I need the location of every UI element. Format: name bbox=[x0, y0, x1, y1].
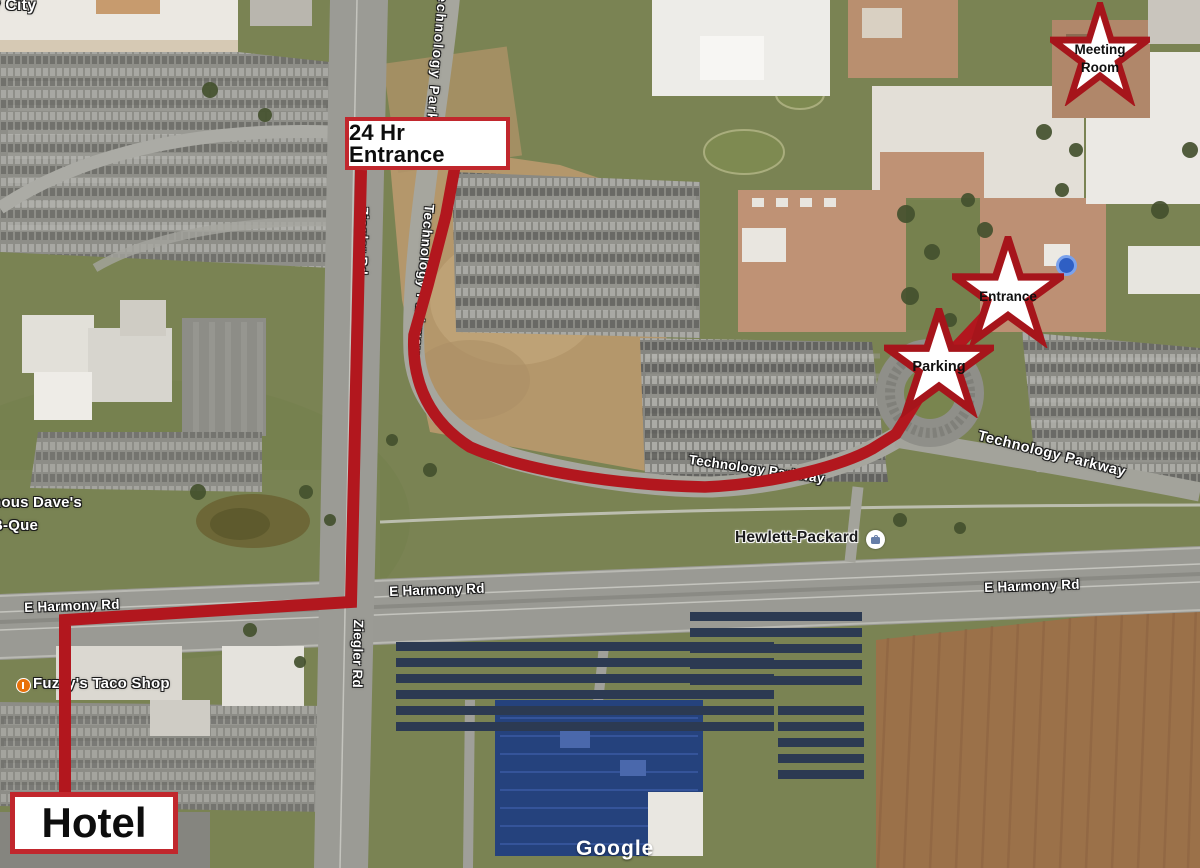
poi-label-famous-daves-line1: nous Dave's bbox=[0, 494, 82, 511]
callout-hotel-label: Hotel bbox=[42, 802, 147, 844]
star-label: Meeting Room bbox=[1074, 32, 1125, 76]
star-marker-parking: Parking bbox=[884, 308, 994, 418]
poi-label-famous-daves-line2: B-Que bbox=[0, 517, 38, 534]
callout-hotel: Hotel bbox=[10, 792, 178, 854]
callout-24hr-entrance: 24 Hr Entrance bbox=[345, 117, 510, 170]
star-label: Entrance bbox=[979, 279, 1037, 306]
poi-label-fuzzys-taco-shop: Fuzzy's Taco Shop bbox=[33, 675, 170, 692]
road-label-ziegler-lower: Ziegler Rd bbox=[350, 620, 366, 688]
business-icon bbox=[866, 530, 885, 549]
star-label-line1: Meeting bbox=[1074, 42, 1125, 57]
google-watermark: Google bbox=[576, 837, 654, 861]
star-label-line2: Room bbox=[1081, 60, 1119, 75]
satellite-basemap bbox=[0, 0, 1200, 868]
star-marker-meeting-room: Meeting Room bbox=[1050, 2, 1150, 106]
restaurant-icon bbox=[16, 678, 31, 693]
callout-24hr-entrance-label: 24 Hr Entrance bbox=[349, 122, 506, 166]
road-label-ziegler-upper: Ziegler Rd bbox=[355, 207, 371, 275]
star-label: Parking bbox=[912, 349, 965, 377]
poi-label-city-cutoff: ty City bbox=[0, 0, 36, 15]
poi-label-hewlett-packard: Hewlett-Packard bbox=[735, 529, 859, 547]
map-canvas: E Harmony Rd E Harmony Rd E Harmony Rd Z… bbox=[0, 0, 1200, 868]
